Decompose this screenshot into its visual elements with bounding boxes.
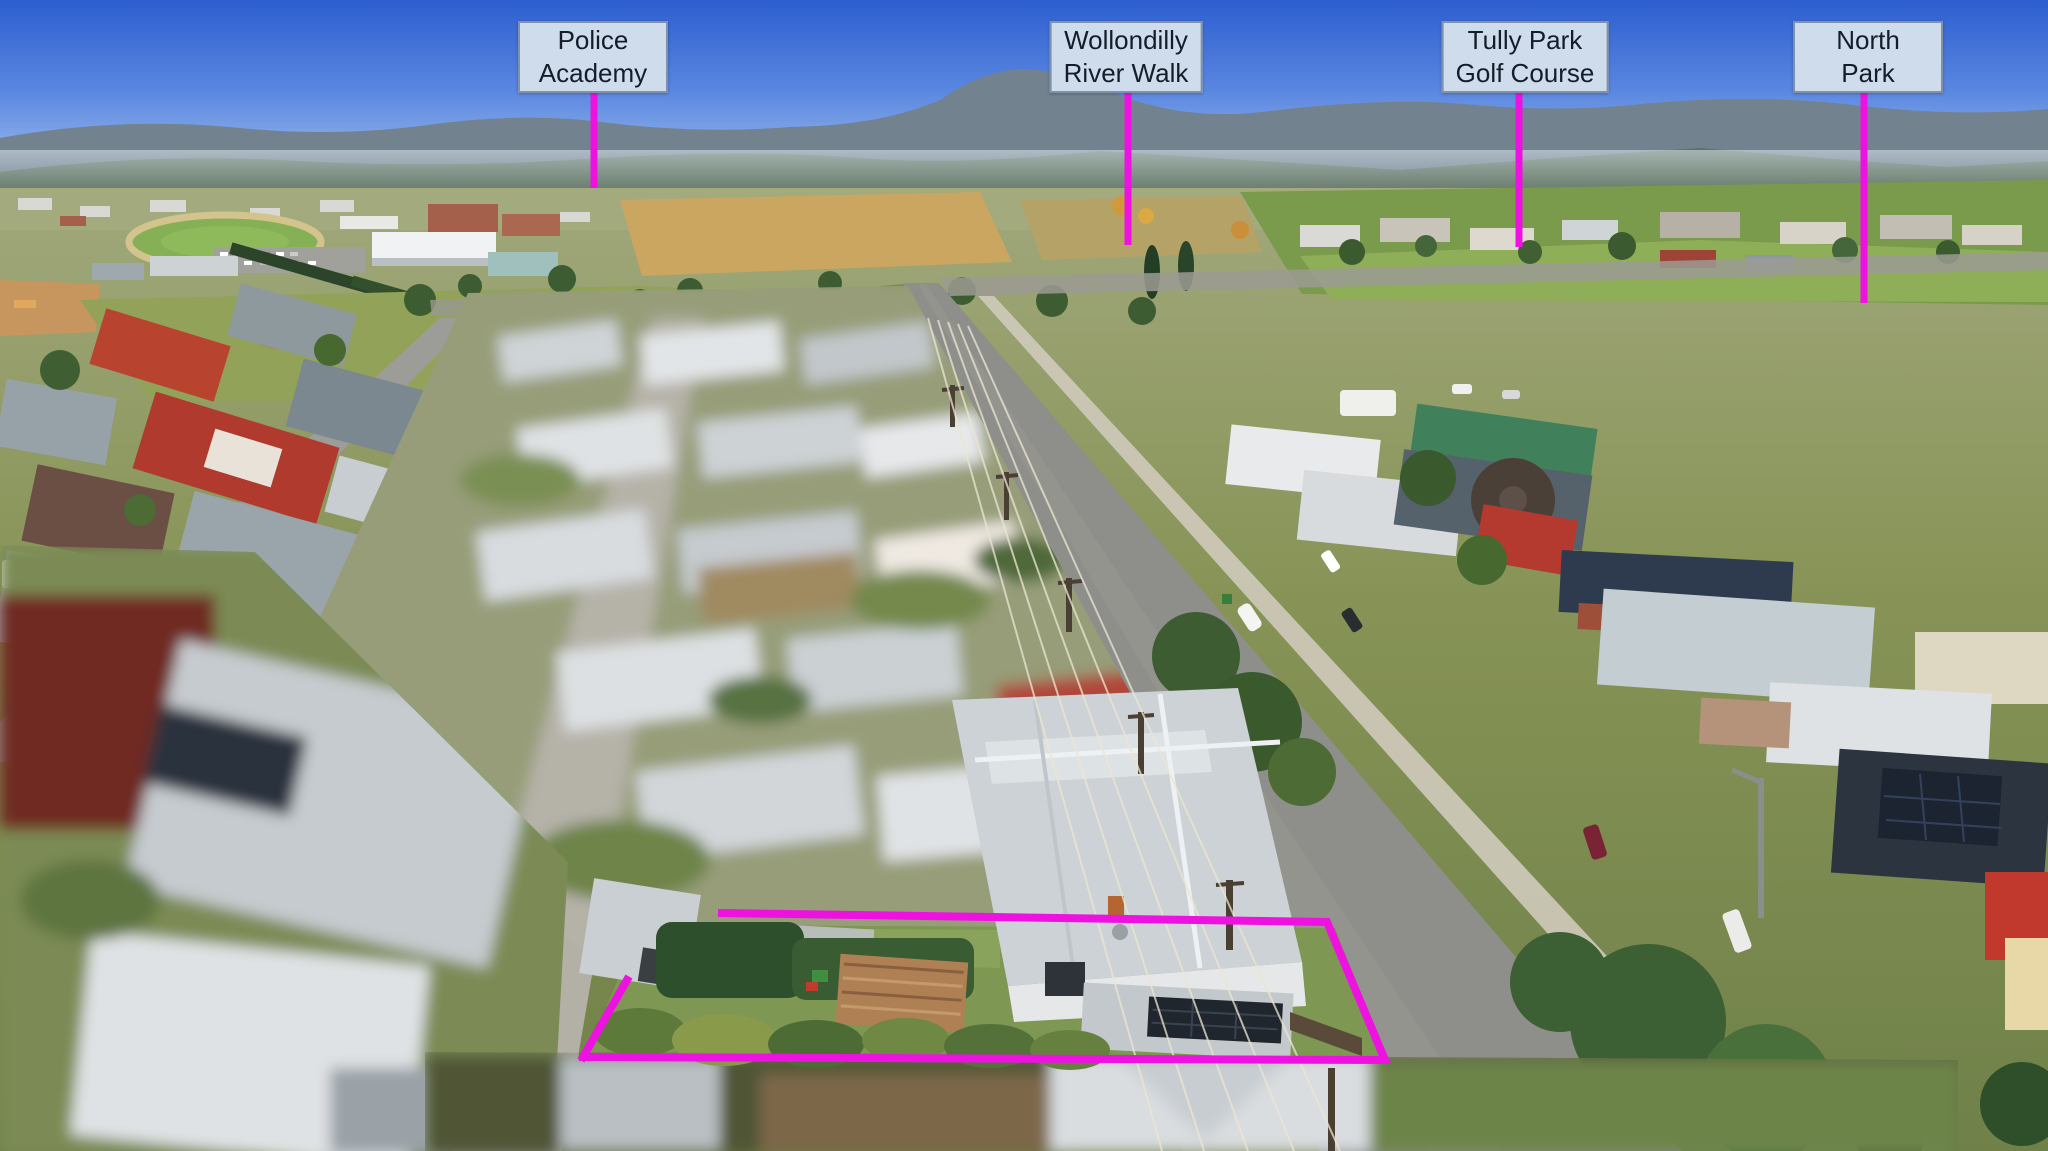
label-line-1: Police	[532, 24, 654, 57]
blurred-foreground-band	[425, 1052, 1965, 1151]
landmark-label-wollondilly-river-walk: Wollondilly River Walk	[1050, 21, 1203, 93]
landmark-label-tully-park-golf-course: Tully Park Golf Course	[1442, 21, 1609, 93]
landmark-label-north-park: North Park	[1793, 21, 1943, 93]
label-line-2: Academy	[532, 57, 654, 90]
label-line-1: Tully Park	[1456, 24, 1595, 57]
label-line-1: Wollondilly	[1064, 24, 1189, 57]
label-line-2: Park	[1807, 57, 1929, 90]
label-line-2: Golf Course	[1456, 57, 1595, 90]
aerial-photo-artwork	[0, 0, 2048, 1151]
label-line-1: North	[1807, 24, 1929, 57]
aerial-photo-scene: Police Academy Wollondilly River Walk Tu…	[0, 0, 2048, 1151]
landmark-label-police-academy: Police Academy	[518, 21, 668, 93]
label-line-2: River Walk	[1064, 57, 1189, 90]
